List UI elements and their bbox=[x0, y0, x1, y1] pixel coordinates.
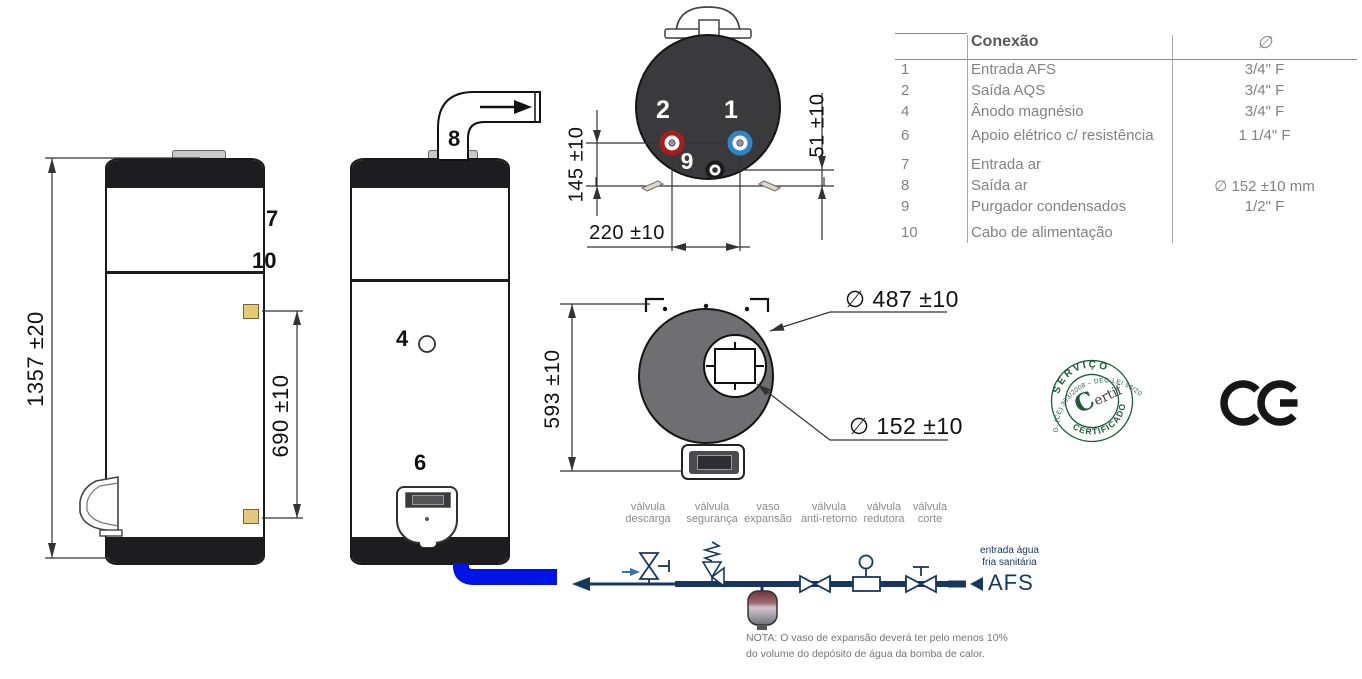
table-vertical-border-2 bbox=[1172, 35, 1173, 243]
svg-text:REG. (CE) 303/2008 – DEC-LEI 5: REG. (CE) 303/2008 – DEC-LEI 56/2011 bbox=[1039, 361, 1144, 437]
air-duct-square bbox=[714, 348, 756, 384]
column-header-diameter: ∅ bbox=[1172, 33, 1357, 53]
table-row: 10 Cabo de alimentação bbox=[895, 222, 1357, 243]
valve-corte bbox=[906, 567, 936, 592]
expansion-vessel bbox=[748, 584, 777, 630]
callout-cold-inlet: 1 bbox=[716, 96, 746, 125]
wall-bracket-lower bbox=[243, 509, 259, 524]
panel-top-screen bbox=[697, 455, 732, 470]
dim-bracket-690: 690 ±10 bbox=[268, 356, 294, 476]
wall-bracket-upper bbox=[243, 304, 259, 319]
control-panel-top-view bbox=[681, 444, 745, 480]
callout-electric-heater: 6 bbox=[414, 450, 426, 476]
airflow-arrow-icon bbox=[514, 100, 532, 114]
callout-condensate-drain: 9 bbox=[672, 148, 702, 175]
table-header-row: Conexão ∅ bbox=[895, 33, 1357, 59]
panel-button bbox=[425, 517, 429, 521]
table-row: 6 Apoio elétrico c/ resistência 1 1/4" F bbox=[895, 122, 1357, 148]
column-header-connection: Conexão bbox=[967, 33, 1172, 51]
table-header-border bbox=[895, 59, 1357, 60]
display-screen-inner bbox=[412, 495, 444, 505]
callout-power-cable: 10 bbox=[252, 248, 276, 274]
technical-drawing-page: 2 1 9 Conexão ∅ 1 Entrada AFS 3/4" F 2 S… bbox=[0, 0, 1362, 679]
table-row: 2 Saída AQS 3/4" F bbox=[895, 80, 1357, 101]
svg-text:SERVIÇO: SERVIÇO bbox=[1045, 349, 1114, 398]
inlet-water-label: entrada água fria sanitária bbox=[962, 545, 1057, 568]
table-row: 9 Purgador condensados 1/2" F bbox=[895, 196, 1357, 217]
side-view-bottom-band bbox=[107, 537, 263, 563]
expansion-vessel-note: NOTA: O vaso de expansão deverá ter pelo… bbox=[746, 630, 1076, 662]
certif-seal: SERVIÇO CERTIFICADO REG. (CE) 303/2008 –… bbox=[1030, 342, 1154, 458]
dim-lines-145 bbox=[593, 110, 601, 216]
seal-bottom-text: CERTIFICADO bbox=[1069, 398, 1136, 446]
svg-text:CERTIFICADO: CERTIFICADO bbox=[1069, 398, 1136, 446]
dim-depth-593: 593 ±10 bbox=[541, 334, 565, 444]
callout-air-outlet: 8 bbox=[448, 126, 460, 152]
valve-anti-retorno bbox=[800, 576, 830, 592]
table-top-border bbox=[895, 33, 967, 34]
dim-spacing-220: 220 ±10 bbox=[581, 222, 673, 245]
front-view-top-band bbox=[352, 160, 508, 188]
table-row: 7 Entrada ar bbox=[895, 154, 1357, 175]
callout-air-inlet: 7 bbox=[266, 206, 278, 232]
table-row: 8 Saída ar ∅ 152 ±10 mm bbox=[895, 175, 1357, 196]
certif-logo: Certif bbox=[1069, 372, 1126, 419]
front-view-unit-separator bbox=[352, 279, 508, 282]
callout-hot-outlet: 2 bbox=[648, 96, 678, 125]
control-panel-front bbox=[396, 486, 458, 544]
side-view-top-band bbox=[107, 160, 263, 188]
callout-anode: 4 bbox=[396, 326, 408, 352]
afs-arrow-icon bbox=[970, 577, 983, 591]
dim-diameter-152: ∅ 152 ±10 bbox=[849, 413, 963, 440]
leader-487 bbox=[770, 312, 947, 331]
dim-diameter-487: ∅ 487 ±10 bbox=[845, 286, 959, 313]
panel-tab bbox=[419, 542, 437, 548]
dim-connections-145: 145 ±10 bbox=[566, 110, 589, 220]
seal-top-text: SERVIÇO bbox=[1045, 349, 1114, 398]
table-row: 4 Ânodo magnésio 3/4" F bbox=[895, 101, 1357, 122]
table-vertical-border-1 bbox=[967, 35, 968, 243]
label-valvula-corte: válvula corte bbox=[902, 502, 958, 525]
ce-mark bbox=[1224, 384, 1297, 422]
hydraulic-schematic bbox=[572, 542, 983, 630]
blue-pipe bbox=[461, 563, 557, 577]
table-row: 1 Entrada AFS 3/4" F bbox=[895, 59, 1357, 80]
valve-redutora bbox=[853, 556, 880, 592]
seal-outer-text: REG. (CE) 303/2008 – DEC-LEI 56/2011 bbox=[1039, 361, 1144, 437]
label-valvula-descarga: válvula descarga bbox=[613, 502, 683, 525]
dim-condensate-51: 51 ±10 bbox=[807, 76, 830, 176]
side-view-tank bbox=[105, 158, 265, 565]
side-view-unit-separator bbox=[107, 271, 263, 274]
valve-descarga bbox=[622, 553, 669, 583]
dim-height-1357: 1357 ±20 bbox=[23, 299, 49, 419]
flow-arrow-left-icon bbox=[572, 577, 590, 591]
afs-label: AFS bbox=[988, 570, 1034, 596]
connections-table: Conexão ∅ 1 Entrada AFS 3/4" F 2 Saída A… bbox=[895, 33, 1357, 243]
valve-seguranca bbox=[703, 542, 724, 586]
